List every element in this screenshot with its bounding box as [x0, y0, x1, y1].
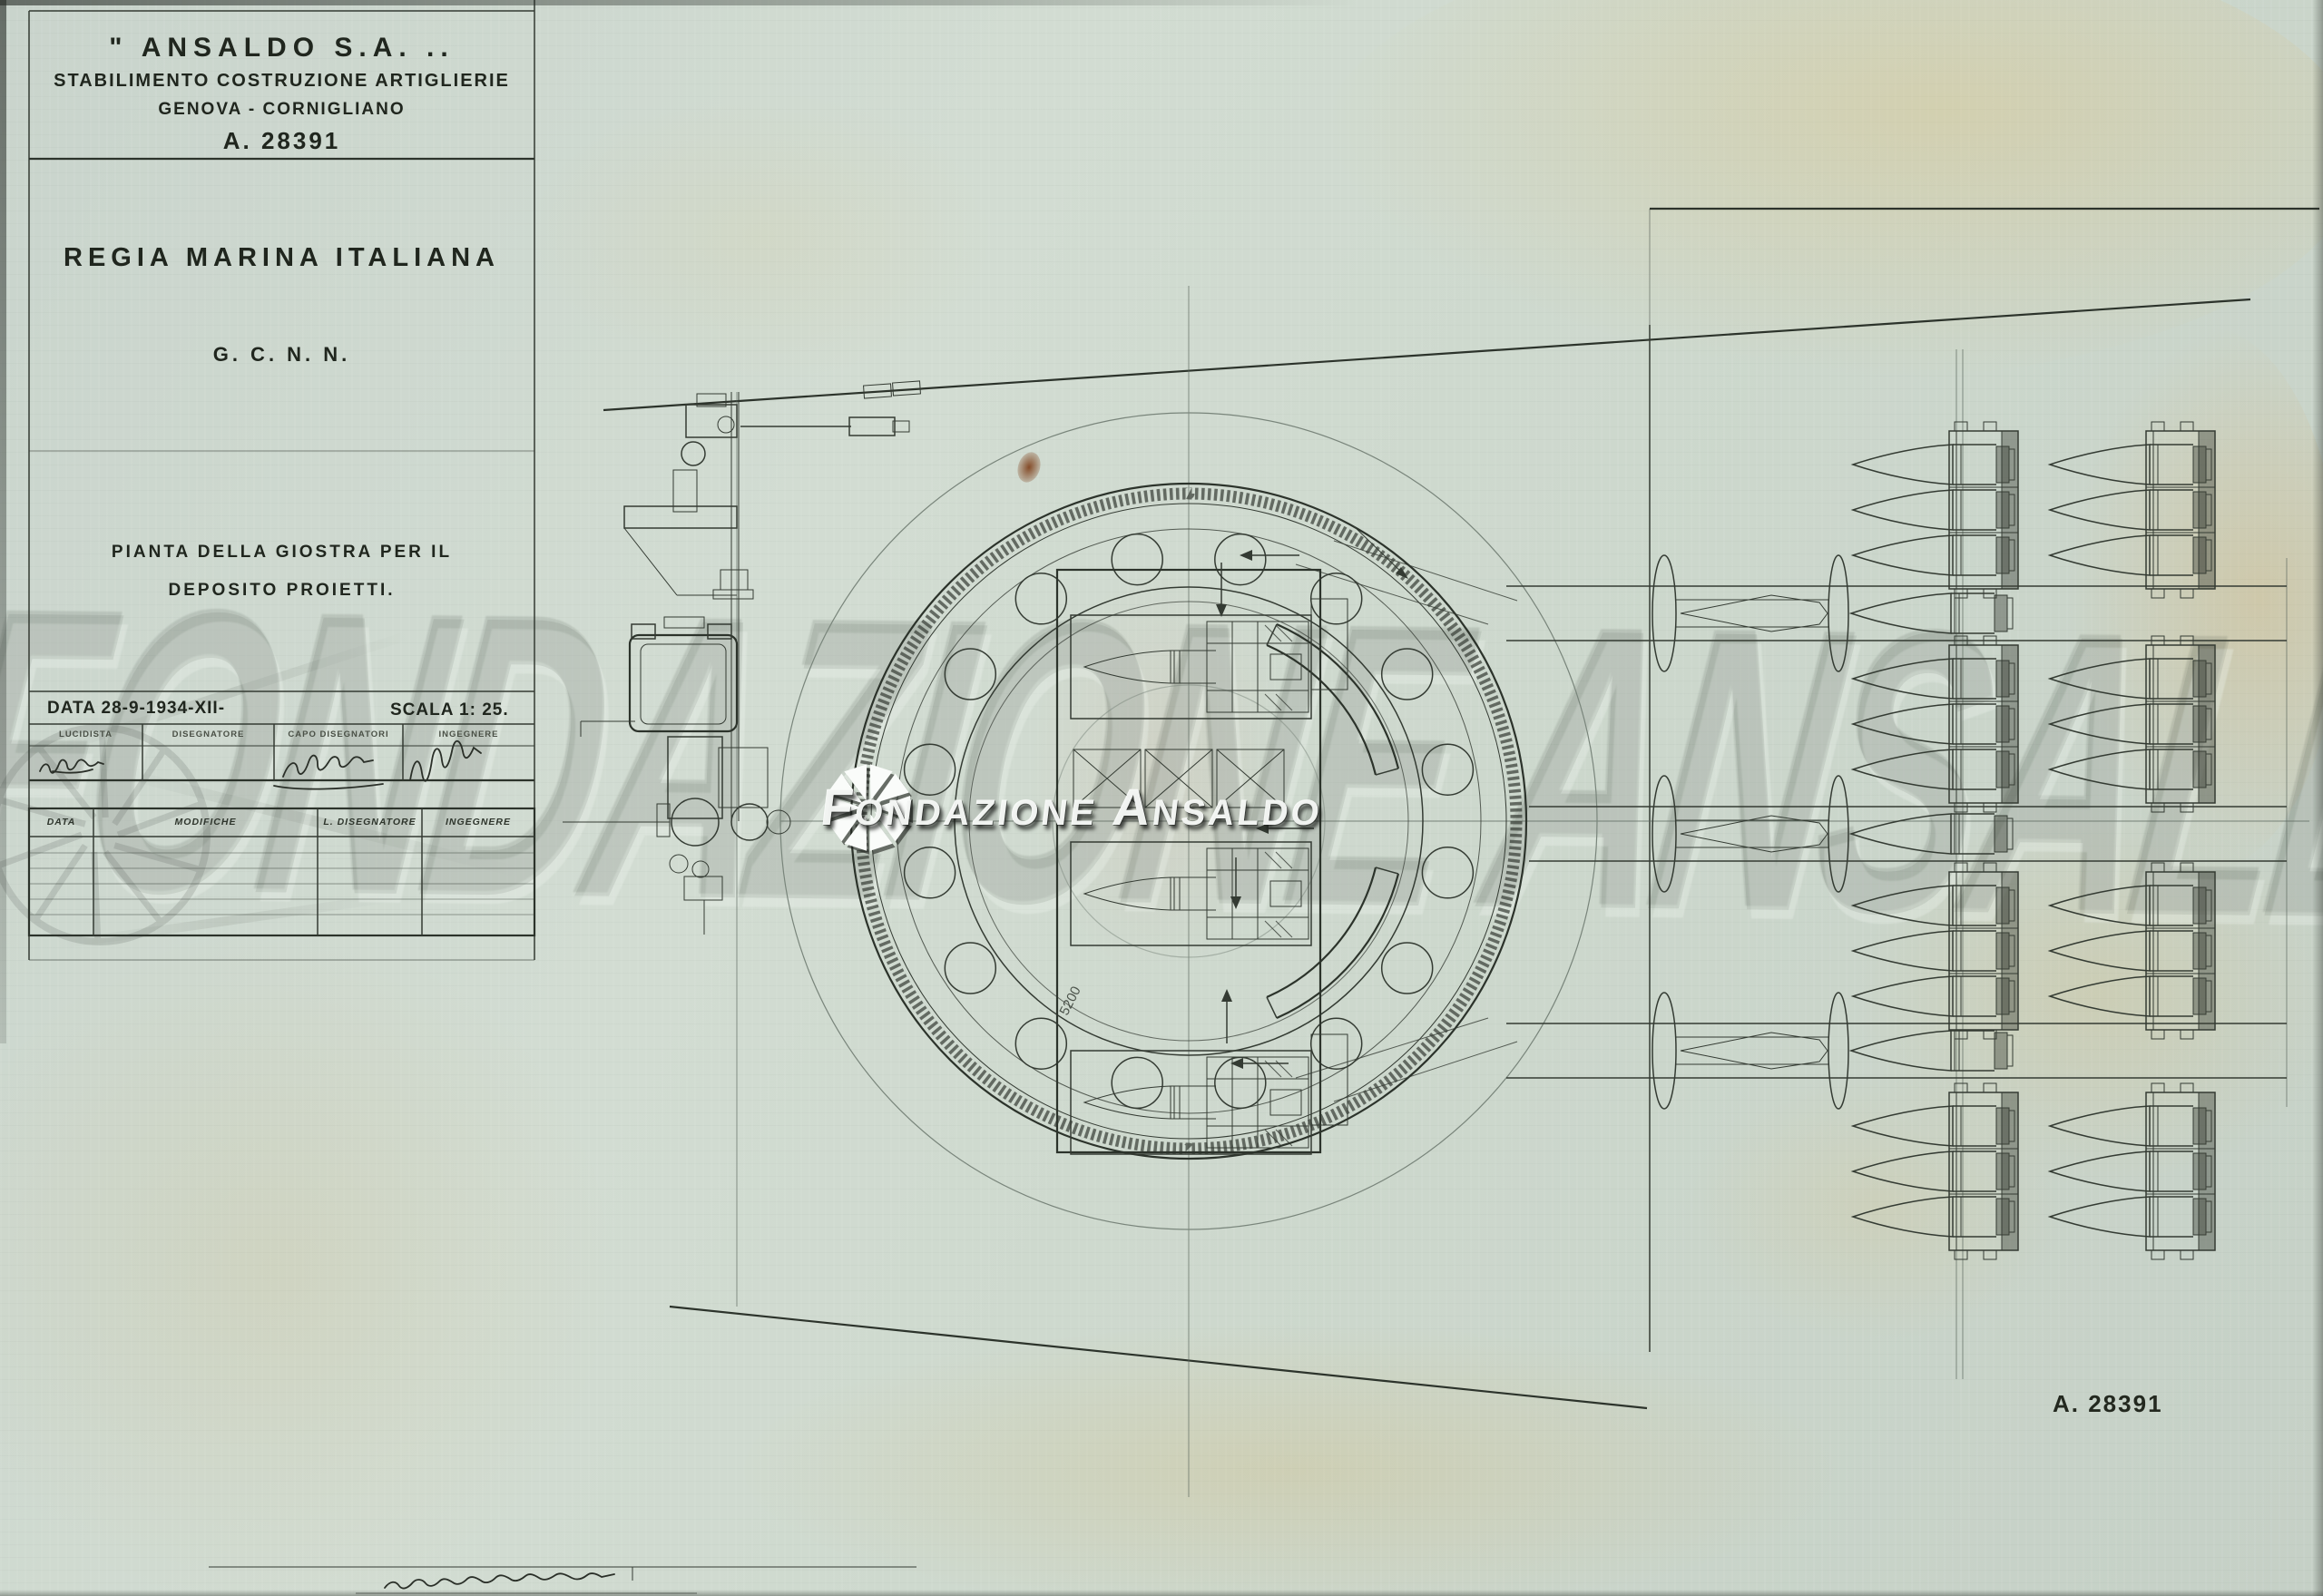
- rammer: [1652, 555, 1848, 671]
- ghost-pinwheel-icon: [0, 708, 227, 962]
- client-title: REGIA MARINA ITALIANA: [29, 243, 534, 273]
- footer-note-handwriting: [385, 1573, 614, 1588]
- scale-label: SCALA 1: 25.: [390, 700, 509, 720]
- revision-header-disegnatore: L. DISEGNATORE: [318, 817, 422, 827]
- signature-capo-disegnatori: [274, 756, 383, 789]
- dimension-leader: [1354, 526, 1408, 579]
- drawing-title-line2: DEPOSITO PROIETTI.: [29, 581, 534, 601]
- watermark-text: Fondazione Ansaldo: [818, 778, 1327, 837]
- shell: [1851, 1031, 2013, 1071]
- ship-class: G. C. N. N.: [29, 343, 534, 367]
- shell-tray: [1071, 615, 1311, 719]
- company-line2: STABILIMENTO COSTRUZIONE ARTIGLIERIE: [29, 71, 534, 92]
- motor: [630, 617, 737, 731]
- footer-drawing-number: A. 28391: [2053, 1390, 2163, 1418]
- blueprint-sheet: FONDAZIONE ANSALDO: [0, 0, 2323, 1596]
- shell: [1851, 814, 2013, 854]
- company-line3: GENOVA - CORNIGLIANO: [29, 100, 534, 120]
- transfer-channel-1: [1652, 555, 2287, 671]
- company-header: " ANSALDO S.A. ..: [29, 33, 534, 64]
- gear-train: [563, 721, 790, 935]
- dimension-label: 5200: [1056, 984, 1083, 1017]
- revision-header-ingegnere: INGEGNERE: [422, 817, 534, 827]
- shell: [1851, 593, 2013, 633]
- centerlines: [737, 286, 2309, 1497]
- signature-ingegnere: [410, 741, 481, 781]
- rack-band-2: [1853, 636, 2215, 812]
- drawing-title-line1: PIANTA DELLA GIOSTRA PER IL: [29, 543, 534, 563]
- rammer: [1652, 993, 1848, 1109]
- rack-band-1: [1853, 422, 2215, 598]
- signature-header-capo-disegnatori: CAPO DISEGNATORI: [274, 729, 403, 739]
- transfer-channel-2: [1652, 776, 2287, 892]
- fondazione-ansaldo-watermark: Fondazione Ansaldo: [821, 760, 1323, 855]
- transfer-channel-3: [1652, 993, 2287, 1109]
- rack-band-3: [1853, 863, 2215, 1039]
- drawing-number: A. 28391: [29, 127, 534, 155]
- shell-racks: [1652, 422, 2287, 1259]
- rammer: [1652, 776, 1848, 892]
- rack-band-4: [1853, 1083, 2215, 1259]
- signature-header-ingegnere: INGEGNERE: [403, 729, 534, 739]
